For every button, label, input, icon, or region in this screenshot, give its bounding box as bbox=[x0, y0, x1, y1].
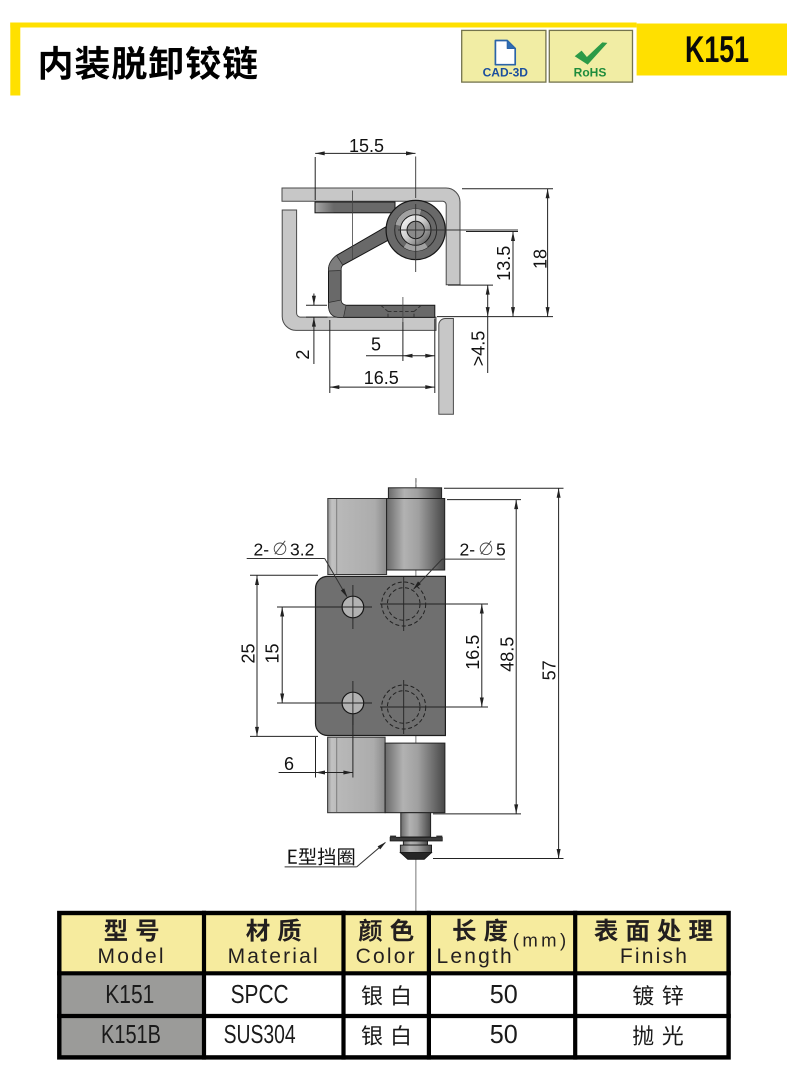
svg-text:57: 57 bbox=[540, 660, 560, 680]
svg-text:15.5: 15.5 bbox=[349, 136, 384, 156]
svg-text:CAD-3D: CAD-3D bbox=[483, 65, 529, 79]
svg-text:5: 5 bbox=[371, 334, 381, 354]
svg-text:50: 50 bbox=[490, 1019, 518, 1049]
svg-text:Finish: Finish bbox=[620, 945, 689, 968]
svg-text:RoHS: RoHS bbox=[574, 65, 607, 79]
svg-text:48.5: 48.5 bbox=[497, 637, 517, 672]
svg-text:K151: K151 bbox=[685, 29, 749, 70]
svg-text:Model: Model bbox=[98, 945, 166, 968]
svg-text:Color: Color bbox=[356, 945, 417, 968]
svg-text:>4.5: >4.5 bbox=[469, 331, 489, 367]
svg-text:25: 25 bbox=[238, 643, 258, 663]
svg-text:18: 18 bbox=[530, 249, 550, 269]
svg-text:13.5: 13.5 bbox=[494, 246, 514, 281]
svg-text:6: 6 bbox=[284, 754, 294, 774]
svg-text:3.2: 3.2 bbox=[290, 539, 314, 559]
svg-text:SPCC: SPCC bbox=[231, 979, 289, 1009]
svg-text:Length: Length bbox=[437, 945, 514, 968]
svg-text:2-: 2- bbox=[460, 539, 476, 559]
svg-text:16.5: 16.5 bbox=[463, 635, 483, 670]
svg-text:SUS304: SUS304 bbox=[224, 1019, 296, 1049]
svg-text:Material: Material bbox=[228, 945, 320, 968]
svg-text:2: 2 bbox=[293, 350, 313, 360]
svg-text:2-: 2- bbox=[254, 539, 270, 559]
svg-text:50: 50 bbox=[490, 979, 518, 1009]
svg-text:5: 5 bbox=[496, 539, 506, 559]
svg-text:K151: K151 bbox=[105, 979, 154, 1009]
svg-text:16.5: 16.5 bbox=[364, 368, 399, 388]
svg-text:15: 15 bbox=[263, 643, 283, 663]
svg-text:K151B: K151B bbox=[101, 1019, 161, 1049]
svg-text:(mm): (mm) bbox=[513, 930, 570, 951]
